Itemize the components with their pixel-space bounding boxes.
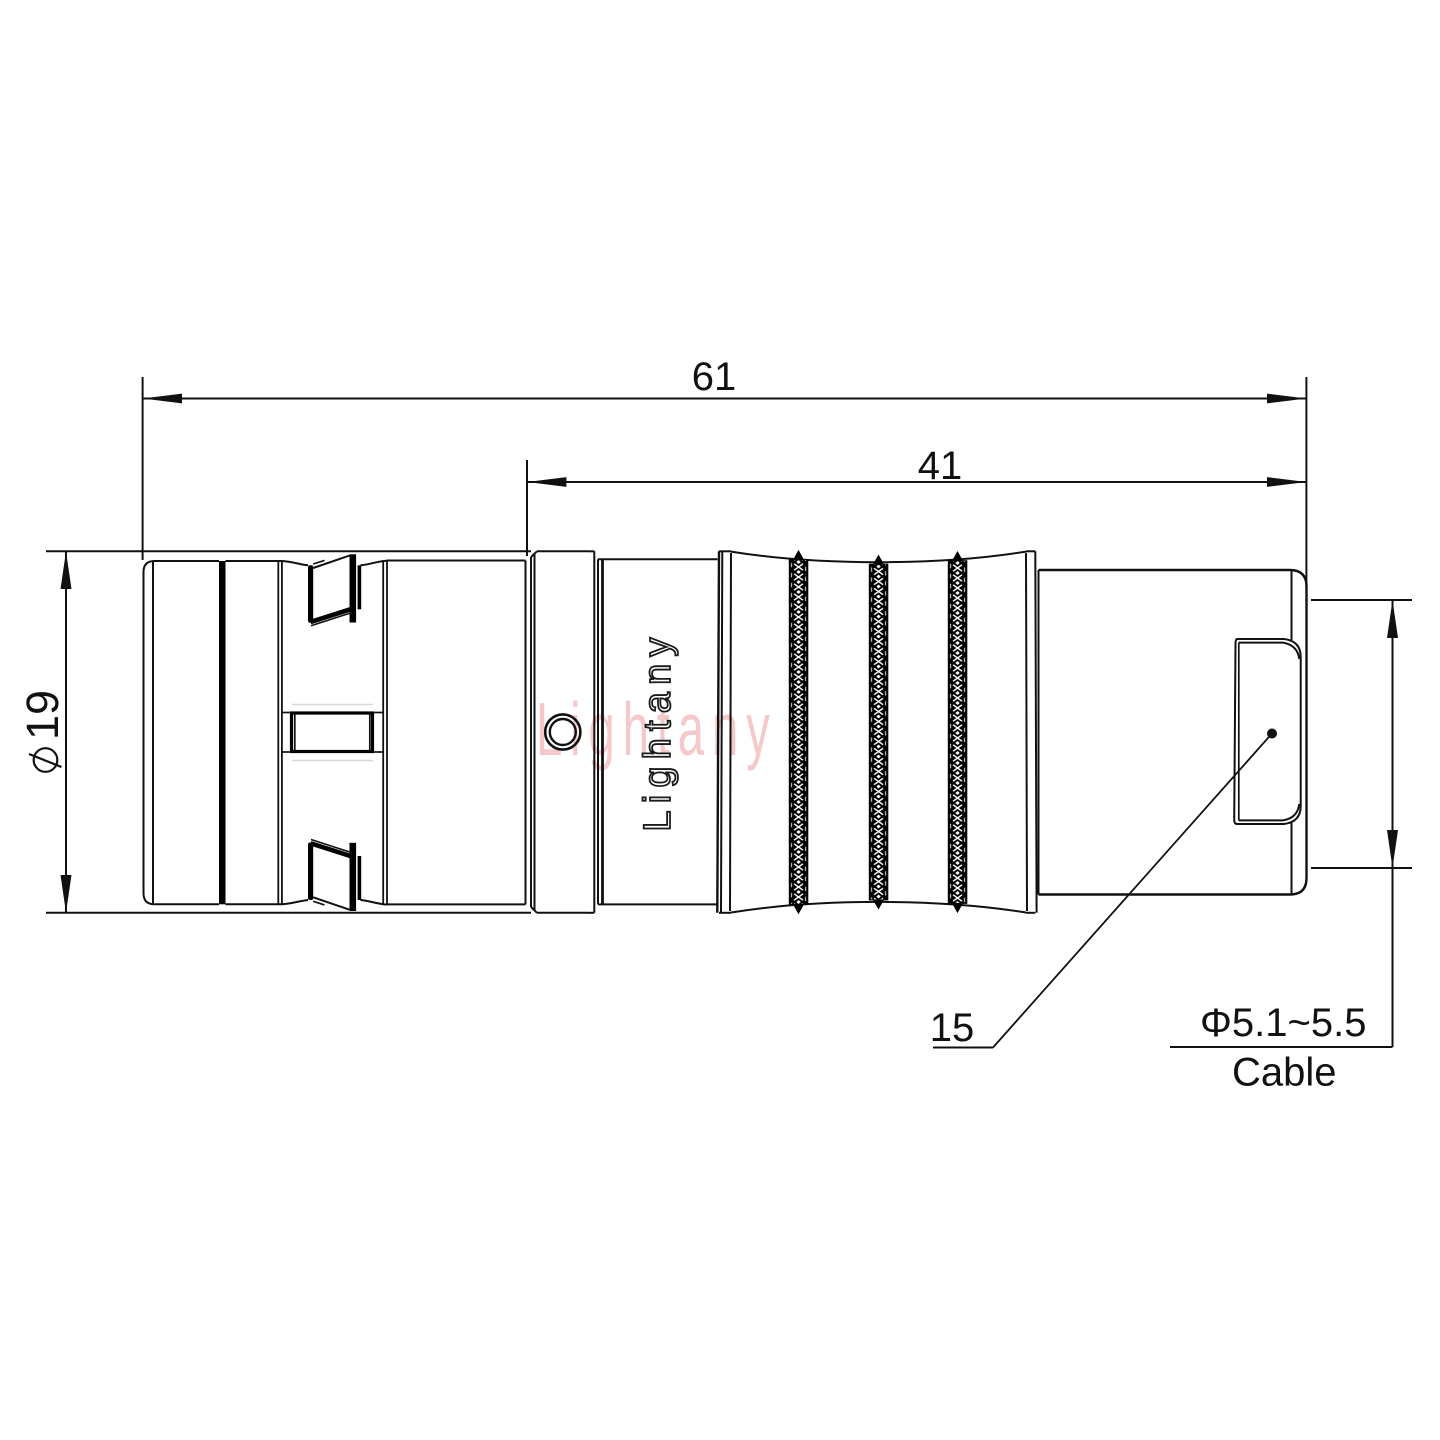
svg-text:41: 41 [918,444,963,488]
svg-text:Lightany: Lightany [637,630,679,831]
svg-text:Φ5.1~5.5: Φ5.1~5.5 [1200,1001,1366,1045]
svg-text:Cable: Cable [1232,1051,1337,1095]
svg-text:19: 19 [17,690,68,740]
svg-text:15: 15 [930,1006,975,1050]
svg-text:61: 61 [692,355,737,399]
